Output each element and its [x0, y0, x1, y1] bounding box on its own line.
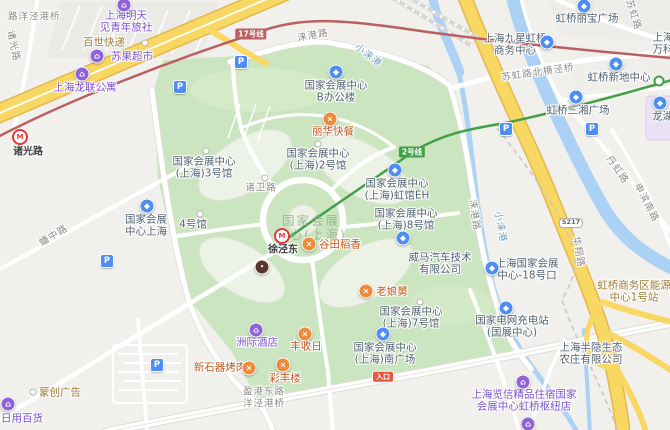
hotel-icon[interactable]: ⌂	[516, 375, 531, 390]
poi-weltmeister-label[interactable]: 威马汽车技术有限公司	[409, 253, 472, 276]
parking-icon[interactable]: P	[234, 55, 248, 69]
mall-icon[interactable]: ◆	[569, 90, 584, 105]
poi-hall-eh-label[interactable]: 国家会展中心(上海)虹馆EH	[365, 179, 430, 202]
station-xujingdong-label[interactable]: 徐泾东	[268, 244, 298, 256]
poi-hostel-label[interactable]: 上海明天见青年旅社	[100, 11, 153, 34]
poi-dot-icon	[197, 211, 204, 218]
poi-suguo-label[interactable]: 苏果超市	[111, 51, 153, 63]
poi-gate18-label[interactable]: 上海国家会展中心-18号口	[496, 259, 559, 282]
gate-icon[interactable]: ◆	[485, 261, 500, 276]
map-canvas[interactable]: 17号线 2号线 S217 入口 M 诸光路 M 徐泾东 国家会展中心(上海) …	[0, 0, 670, 430]
store-icon[interactable]: ⌂	[1, 397, 16, 412]
poi-dot-icon	[262, 175, 269, 182]
poi-dot-icon	[203, 148, 210, 155]
poi-energy-station-label[interactable]: 虹桥商务区能源中心1号站	[597, 281, 670, 304]
parking-icon[interactable]: P	[499, 122, 513, 136]
poi-jiuxing-label[interactable]: 上海九星虹桥商务中心	[484, 34, 547, 57]
parking-icon[interactable]: P	[585, 122, 599, 136]
station-zhuguanglu-label[interactable]: 诸光路	[13, 146, 43, 158]
poi-hall3-label[interactable]: 国家会展中心(上海)3号馆	[173, 157, 236, 180]
poi-mengchuang-label[interactable]: 蒙创广告	[39, 387, 81, 399]
restaurant-icon[interactable]: ×	[359, 284, 374, 299]
restaurant-icon[interactable]: ×	[323, 112, 338, 127]
poi-banyin-label[interactable]: 上海半隐生态农庄有限公司	[560, 343, 623, 366]
poi-hall2-label[interactable]: 国家会展中心(上海)2号馆	[287, 149, 350, 172]
poi-fengshouri-label[interactable]: 丰收日	[290, 341, 322, 353]
poi-state-grid-label[interactable]: 国家电网充电站(国展中心)	[475, 316, 549, 339]
parking-icon[interactable]: P	[173, 80, 187, 94]
poi-sanxiang-label[interactable]: 虹桥三湘广场	[547, 105, 610, 117]
poi-laoniangjiu-label[interactable]: 老娘舅	[376, 286, 408, 298]
poi-caifenglou-label[interactable]: 彩丰楼	[269, 373, 301, 385]
metro-station-icon[interactable]: M	[12, 129, 28, 145]
road-label: 盈港东路洋泾港桥	[243, 387, 285, 410]
metro-line17-badge: 17号线	[235, 29, 266, 40]
metro-line2-badge: 2号线	[399, 147, 425, 158]
poi-dot-icon	[30, 389, 37, 396]
supermarket-icon[interactable]: ⌂	[90, 49, 105, 64]
entrance-badge: 入口	[373, 372, 393, 382]
poi-dot-icon	[315, 141, 322, 148]
restaurant-icon[interactable]: ×	[242, 361, 257, 376]
poi-riyongbaihuo-label[interactable]: 日用百货	[1, 413, 43, 425]
office-icon[interactable]: ◆	[540, 35, 555, 50]
charging-station-icon[interactable]: ◆	[499, 301, 514, 316]
restaurant-icon[interactable]: ×	[276, 358, 291, 373]
poi-lihua-label[interactable]: 丽华快餐	[312, 126, 354, 138]
apartment-icon[interactable]: ⌂	[75, 67, 90, 82]
restaurant-icon[interactable]: ×	[298, 327, 313, 342]
landmark-icon[interactable]: ◆	[396, 231, 411, 246]
poi-dot-icon	[417, 299, 424, 306]
landmark-icon[interactable]: ◆	[329, 65, 344, 80]
restaurant-icon[interactable]: ×	[302, 237, 317, 252]
landmark-icon[interactable]: ◆	[388, 163, 403, 178]
poi-necc-shanghai-label[interactable]: 国家会展中心上海	[125, 215, 167, 238]
poi-longhu-label[interactable]: 龙湖天街	[652, 111, 670, 123]
poi-lanxin-label[interactable]: 上海览信精品住宿国家会展中心虹桥枢纽店	[472, 390, 577, 413]
poi-hall4-label[interactable]: 4号馆	[179, 219, 207, 231]
road-label: 路洋泾港桥	[8, 11, 61, 23]
poi-xinshiqi-label[interactable]: 新石器烤肉	[194, 362, 247, 374]
poi-hall7-label[interactable]: 国家会展中心(上海)7号馆	[380, 307, 443, 330]
poi-baishi-label[interactable]: 百世快递	[83, 37, 125, 49]
poi-gutian-label[interactable]: 谷田稻香	[319, 239, 361, 251]
office-icon[interactable]: ◆	[609, 57, 624, 72]
poi-intercontinental-label[interactable]: 洲际酒店	[236, 337, 278, 349]
poi-longlian-label[interactable]: 上海龙联公寓	[54, 82, 117, 94]
road-shield-badge: S217	[559, 218, 583, 228]
road-label: 诸卫路	[245, 182, 277, 194]
metro-station-icon[interactable]: M	[274, 228, 290, 244]
hotel-icon[interactable]: ⌂	[249, 323, 264, 338]
cafe-icon[interactable]: •	[255, 260, 270, 275]
hotel-icon[interactable]: ⌂	[521, 417, 536, 430]
landmark-icon[interactable]: ◆	[376, 327, 391, 342]
parking-icon[interactable]: P	[150, 358, 164, 372]
transit-stop-icon[interactable]	[654, 76, 665, 87]
poi-dot-icon	[142, 40, 149, 47]
parking-icon[interactable]: P	[100, 254, 114, 268]
mall-icon[interactable]: ◆	[653, 96, 668, 111]
poi-edge-ne-label[interactable]: 上海万科	[653, 33, 670, 56]
poi-necc-b-office-label[interactable]: 国家会展中心B办公楼	[305, 81, 368, 104]
poi-south-plaza-label[interactable]: 国家会展中心(上海)南广场	[354, 343, 417, 366]
poi-hall8-label[interactable]: 国家会展中心(上海)8号馆	[375, 209, 438, 232]
landmark-icon[interactable]: ◆	[140, 199, 155, 214]
poi-libao-label[interactable]: 虹桥丽宝广场	[556, 13, 619, 25]
poi-xindi-label[interactable]: 虹桥新地中心	[588, 72, 651, 84]
